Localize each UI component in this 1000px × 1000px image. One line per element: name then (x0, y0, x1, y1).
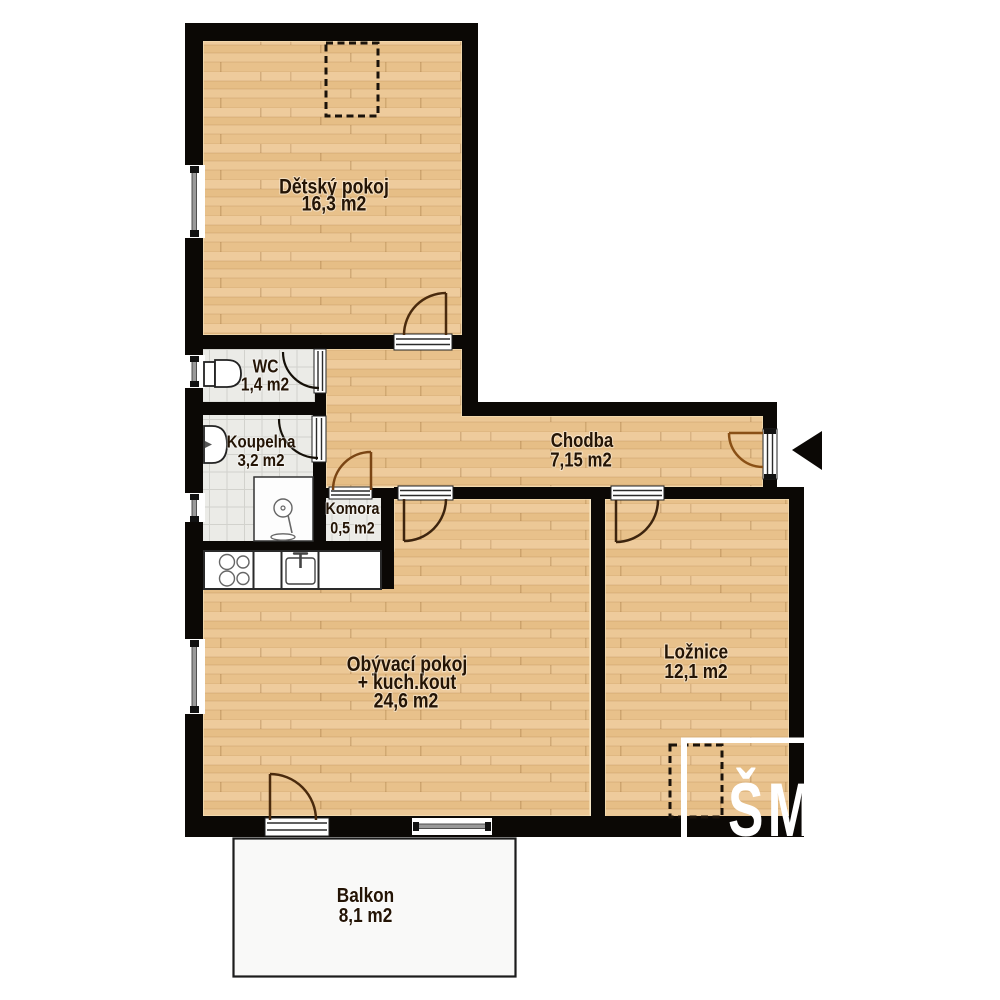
svg-text:12,1 m2: 12,1 m2 (664, 661, 727, 684)
svg-text:ŠM: ŠM (728, 768, 816, 853)
svg-text:7,15 m2: 7,15 m2 (550, 448, 612, 471)
svg-text:24,6 m2: 24,6 m2 (374, 689, 439, 713)
svg-text:Koupelna: Koupelna (227, 431, 297, 452)
svg-text:0,5 m2: 0,5 m2 (330, 519, 375, 537)
svg-text:1,4 m2: 1,4 m2 (241, 374, 289, 395)
svg-text:Komora: Komora (326, 500, 380, 518)
svg-text:3,2 m2: 3,2 m2 (237, 450, 284, 471)
svg-text:8,1 m2: 8,1 m2 (339, 905, 393, 928)
svg-text:16,3 m2: 16,3 m2 (302, 192, 367, 216)
